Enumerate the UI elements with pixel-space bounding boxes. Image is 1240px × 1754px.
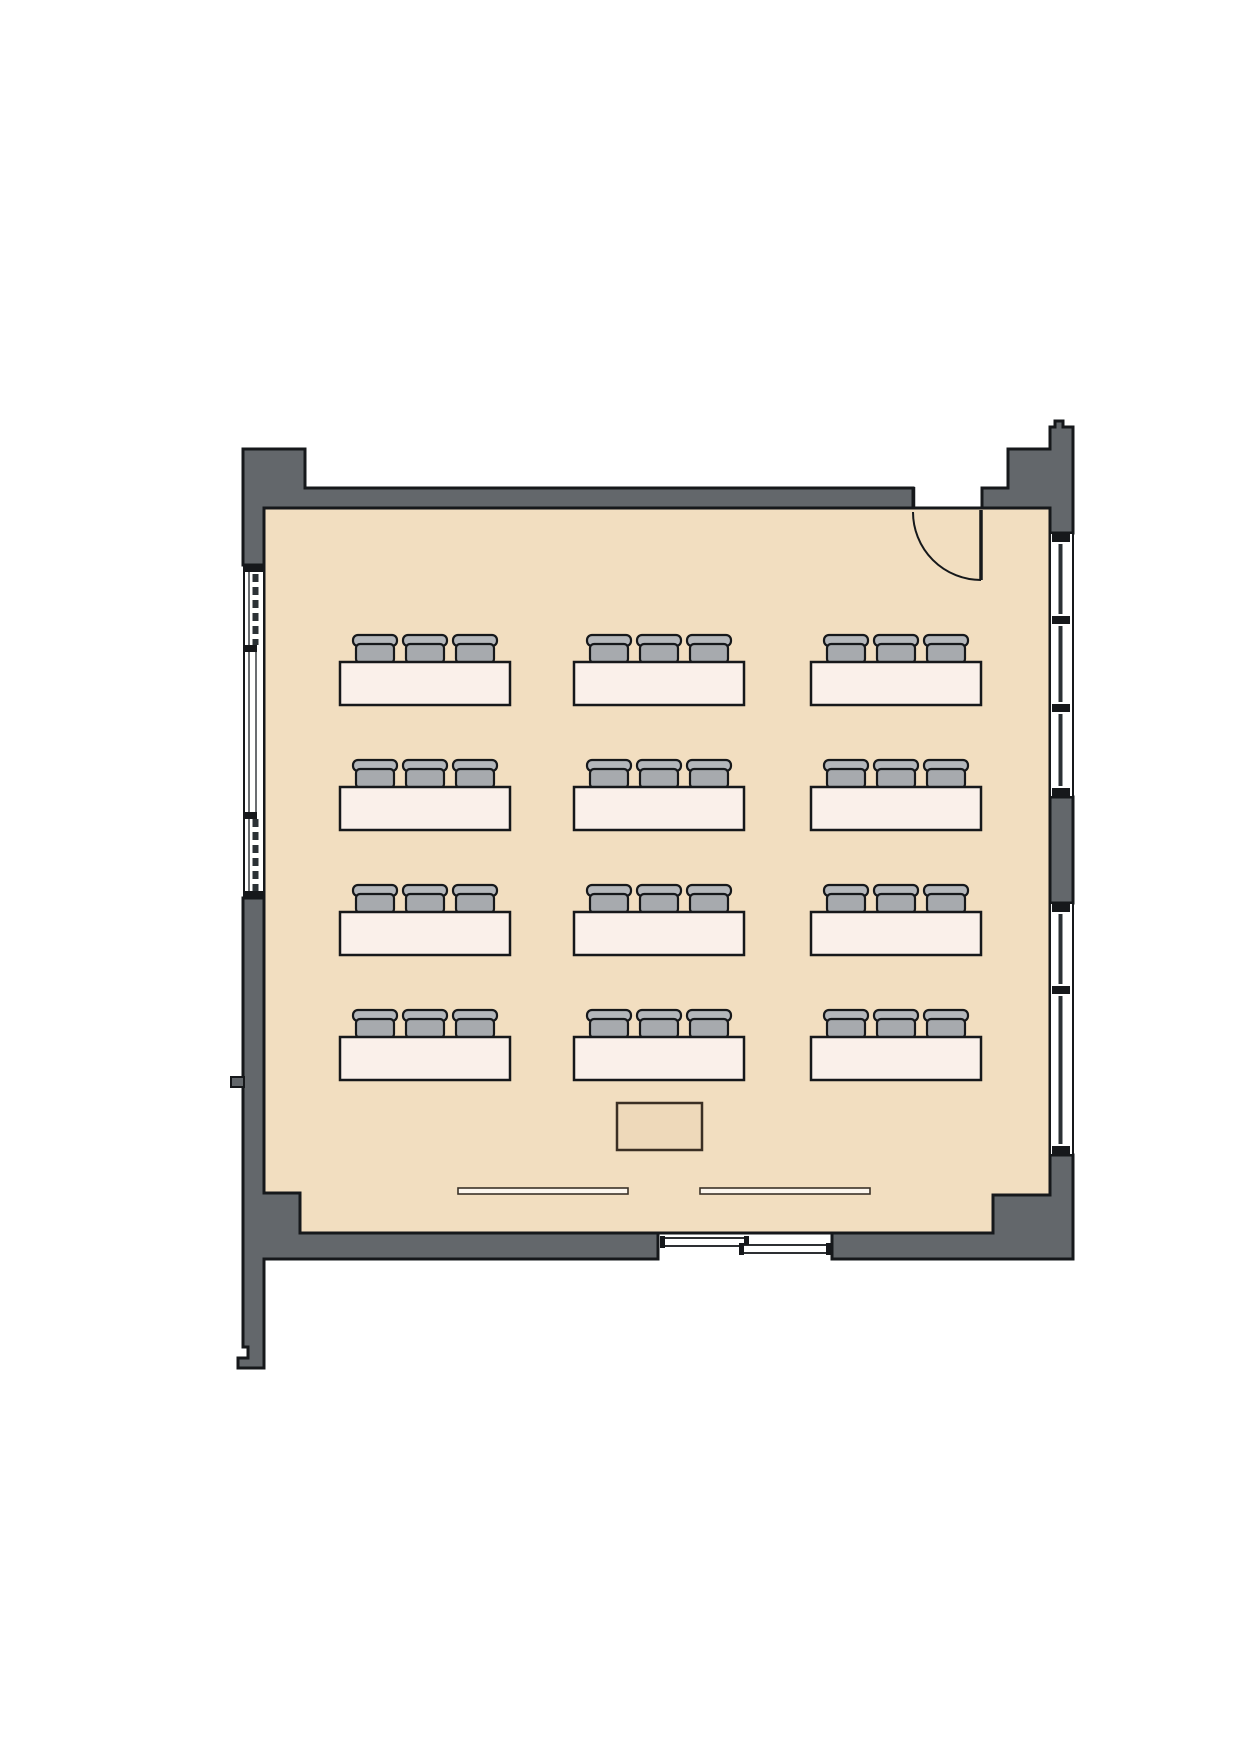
teacher-desk <box>617 1103 702 1150</box>
student-table-row2-col1 <box>340 787 510 830</box>
window-left-sill-top <box>244 565 264 572</box>
chair-seat-r4c1-1 <box>356 1019 394 1038</box>
chair-seat-r3c2-3 <box>690 894 728 913</box>
student-table-row1-col2 <box>574 662 744 705</box>
student-table-row1-col3 <box>811 662 981 705</box>
chair-seat-r2c3-3 <box>927 769 965 788</box>
chair-seat-r1c1-3 <box>456 644 494 663</box>
student-table-row2-col2 <box>574 787 744 830</box>
chair-seat-r3c3-3 <box>927 894 965 913</box>
chair-seat-r2c2-3 <box>690 769 728 788</box>
floor-plan-canvas <box>0 0 1240 1754</box>
chair-seat-r4c1-2 <box>406 1019 444 1038</box>
window-left <box>244 565 264 898</box>
chair-seat-r1c3-1 <box>827 644 865 663</box>
chair-seat-r1c1-2 <box>406 644 444 663</box>
student-table-row3-col1 <box>340 912 510 955</box>
student-table-row3-col2 <box>574 912 744 955</box>
chair-seat-r1c2-2 <box>640 644 678 663</box>
window-mullion <box>1052 904 1070 912</box>
chair-seat-r3c1-1 <box>356 894 394 913</box>
window-left-mullion-1 <box>244 645 257 652</box>
student-table-row2-col3 <box>811 787 981 830</box>
chair-seat-r4c3-3 <box>927 1019 965 1038</box>
floor-plan <box>0 0 1240 1754</box>
chair-seat-r3c1-3 <box>456 894 494 913</box>
chair-seat-r4c2-2 <box>640 1019 678 1038</box>
panel-end-cap <box>660 1236 665 1248</box>
window-mullion <box>1052 534 1070 542</box>
window-left-mullion-2 <box>244 812 257 819</box>
chair-seat-r2c3-2 <box>877 769 915 788</box>
window-right-upper <box>1050 533 1073 797</box>
window-mullion <box>1052 986 1070 994</box>
chair-seat-r4c3-1 <box>827 1019 865 1038</box>
chair-seat-r1c2-1 <box>590 644 628 663</box>
sliding-door <box>660 1236 831 1255</box>
chair-seat-r2c1-1 <box>356 769 394 788</box>
sliding-panel-right <box>742 1245 829 1253</box>
chair-seat-r1c2-3 <box>690 644 728 663</box>
chair-seat-r1c3-2 <box>877 644 915 663</box>
chair-seat-r4c2-1 <box>590 1019 628 1038</box>
window-mullion <box>1052 616 1070 624</box>
chair-seat-r2c1-2 <box>406 769 444 788</box>
chair-seat-r4c3-2 <box>877 1019 915 1038</box>
panel-end-cap <box>826 1243 831 1255</box>
chair-seat-r4c1-3 <box>456 1019 494 1038</box>
window-left-sill-bottom <box>244 891 264 898</box>
student-table-row4-col1 <box>340 1037 510 1080</box>
sliding-panel-left <box>663 1238 747 1246</box>
window-mullion <box>1052 704 1070 712</box>
chair-seat-r2c3-1 <box>827 769 865 788</box>
student-table-row3-col3 <box>811 912 981 955</box>
window-right-lower <box>1050 903 1073 1155</box>
chair-seat-r4c2-3 <box>690 1019 728 1038</box>
board-line-1 <box>458 1188 628 1194</box>
student-table-row4-col2 <box>574 1037 744 1080</box>
chair-seat-r3c3-2 <box>877 894 915 913</box>
chair-seat-r3c2-2 <box>640 894 678 913</box>
chair-seat-r3c1-2 <box>406 894 444 913</box>
window-mullion <box>1052 788 1070 796</box>
panel-end-cap <box>739 1243 744 1255</box>
board-line-2 <box>700 1188 870 1194</box>
chair-seat-r3c3-1 <box>827 894 865 913</box>
chair-seat-r1c3-3 <box>927 644 965 663</box>
student-table-row1-col1 <box>340 662 510 705</box>
student-table-row4-col3 <box>811 1037 981 1080</box>
chair-seat-r2c1-3 <box>456 769 494 788</box>
wall-exterior-tick <box>231 1077 244 1087</box>
chair-seat-r2c2-2 <box>640 769 678 788</box>
window-mullion <box>1052 1146 1070 1154</box>
chair-seat-r1c1-1 <box>356 644 394 663</box>
chair-seat-r2c2-1 <box>590 769 628 788</box>
wall-right-mid-pier <box>1050 797 1073 903</box>
chair-seat-r3c2-1 <box>590 894 628 913</box>
